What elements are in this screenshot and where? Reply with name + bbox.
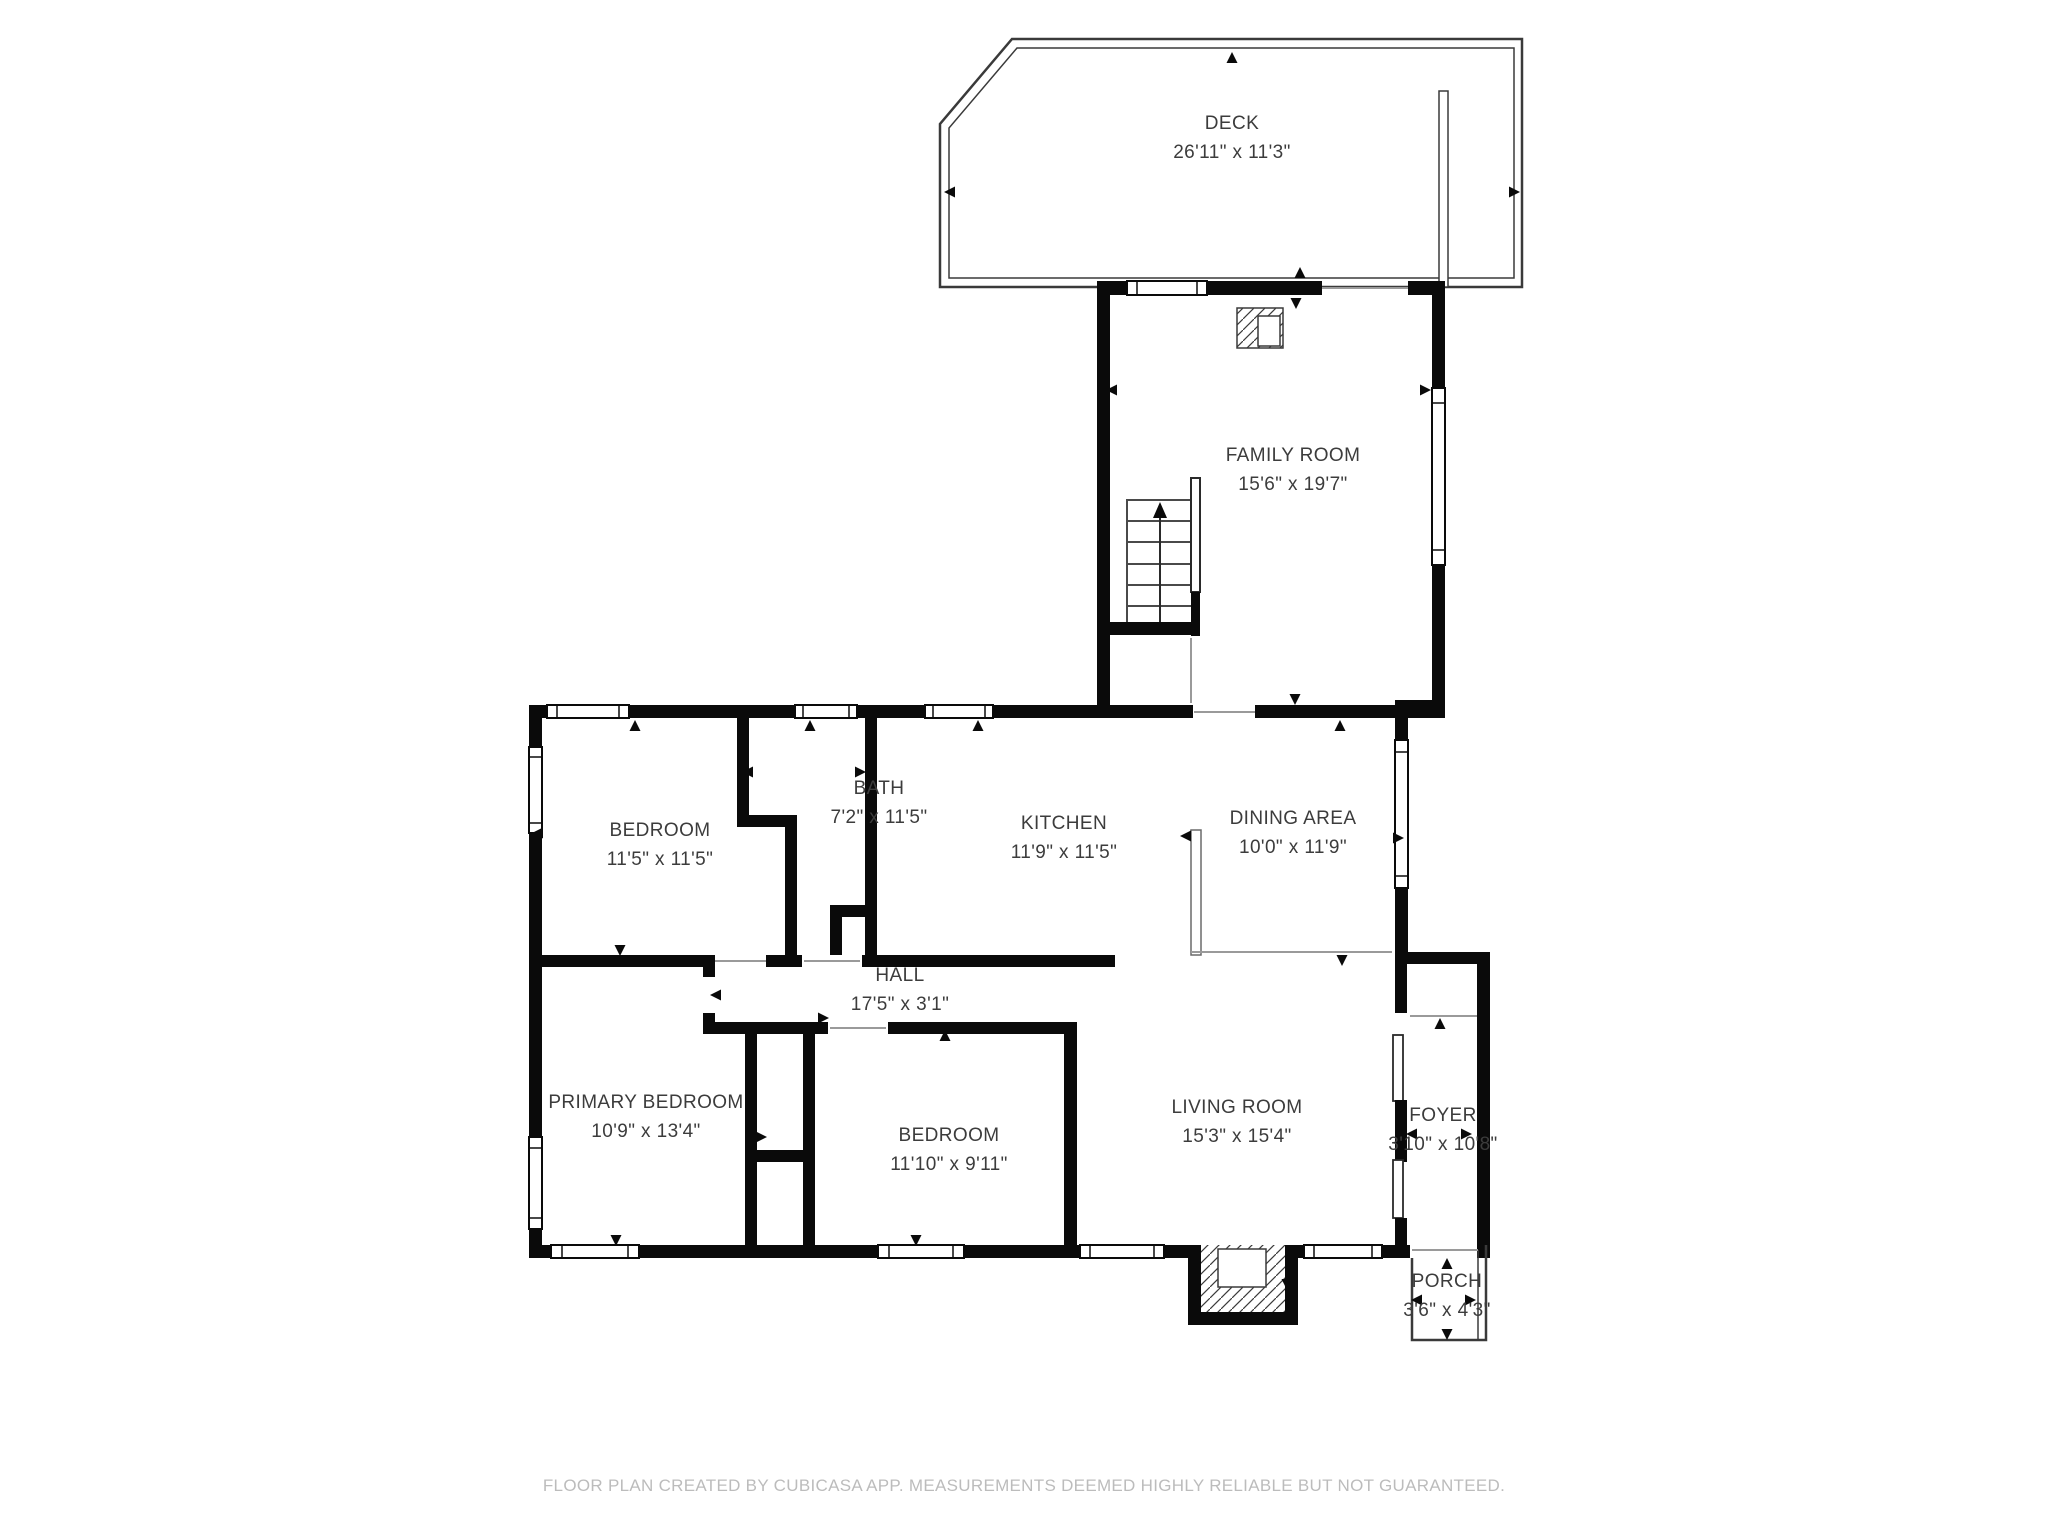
window: [1127, 281, 1207, 295]
room-dimensions: 15'6" x 19'7": [1226, 470, 1361, 499]
footer-disclaimer: FLOOR PLAN CREATED BY CUBICASA APP. MEAS…: [0, 1476, 2048, 1496]
room-label-family-room: FAMILY ROOM 15'6" x 19'7": [1226, 441, 1361, 499]
room-dimensions: 11'9" x 11'5": [1011, 838, 1118, 867]
room-dimensions: 7'2" x 11'5": [830, 803, 927, 832]
room-name: DINING AREA: [1230, 804, 1357, 833]
room-dimensions: 15'3" x 15'4": [1171, 1122, 1302, 1151]
room-label-foyer: FOYER 3'10" x 10'8": [1388, 1101, 1497, 1159]
room-label-kitchen: KITCHEN 11'9" x 11'5": [1011, 809, 1118, 867]
room-label-primary-bedroom: PRIMARY BEDROOM 10'9" x 13'4": [548, 1088, 743, 1146]
left-exterior-wall: [529, 705, 542, 1258]
room-dimensions: 11'5" x 11'5": [607, 845, 714, 874]
room-label-living-room: LIVING ROOM 15'3" x 15'4": [1171, 1093, 1302, 1151]
room-label-dining-area: DINING AREA 10'0" x 11'9": [1230, 804, 1357, 862]
room-dimensions: 3'10" x 10'8": [1388, 1130, 1497, 1159]
room-dimensions: 10'0" x 11'9": [1230, 833, 1357, 862]
room-name: LIVING ROOM: [1171, 1093, 1302, 1122]
floor-plan-page: DECK 26'11" x 11'3" FAMILY ROOM 15'6" x …: [0, 0, 2048, 1536]
room-name: BATH: [830, 774, 927, 803]
room-name: PORCH: [1403, 1267, 1490, 1296]
room-name: FAMILY ROOM: [1226, 441, 1361, 470]
room-dimensions: 11'10" x 9'11": [890, 1150, 1008, 1179]
main-top-wall: [529, 705, 993, 718]
room-dimensions: 26'11" x 11'3": [1173, 138, 1291, 167]
room-dimensions: 3'6" x 4'3": [1403, 1296, 1490, 1325]
room-label-bath: BATH 7'2" x 11'5": [830, 774, 927, 832]
closet-walls: [745, 1022, 815, 1258]
room-name: BEDROOM: [890, 1121, 1008, 1150]
door-arrow-marks: [532, 52, 1520, 1340]
room-label-deck: DECK 26'11" x 11'3": [1173, 109, 1291, 167]
room-label-bedroom-upper: BEDROOM 11'5" x 11'5": [607, 816, 714, 874]
room-label-hall: HALL 17'5" x 3'1": [851, 961, 949, 1019]
chimney-icon: [1237, 308, 1283, 348]
room-dimensions: 10'9" x 13'4": [548, 1117, 743, 1146]
room-name: FOYER: [1388, 1101, 1497, 1130]
window: [1432, 388, 1445, 565]
hall-walls: [529, 955, 1115, 1034]
room-name: PRIMARY BEDROOM: [548, 1088, 743, 1117]
room-name: KITCHEN: [1011, 809, 1118, 838]
room-dimensions: 17'5" x 3'1": [851, 990, 949, 1019]
floor-plan-drawing: [0, 0, 2048, 1536]
fireplace-icon: [1188, 1245, 1298, 1325]
deck-house-wall: [1097, 281, 1445, 295]
room-name: BEDROOM: [607, 816, 714, 845]
room-label-porch: PORCH 3'6" x 4'3": [1403, 1267, 1490, 1325]
living-dining-walls: [1064, 700, 1445, 1258]
room-label-bedroom-lower: BEDROOM 11'10" x 9'11": [890, 1121, 1008, 1179]
staircase-icon: [1097, 478, 1200, 703]
room-name: HALL: [851, 961, 949, 990]
room-name: DECK: [1173, 109, 1291, 138]
family-room-walls: [993, 281, 1445, 718]
